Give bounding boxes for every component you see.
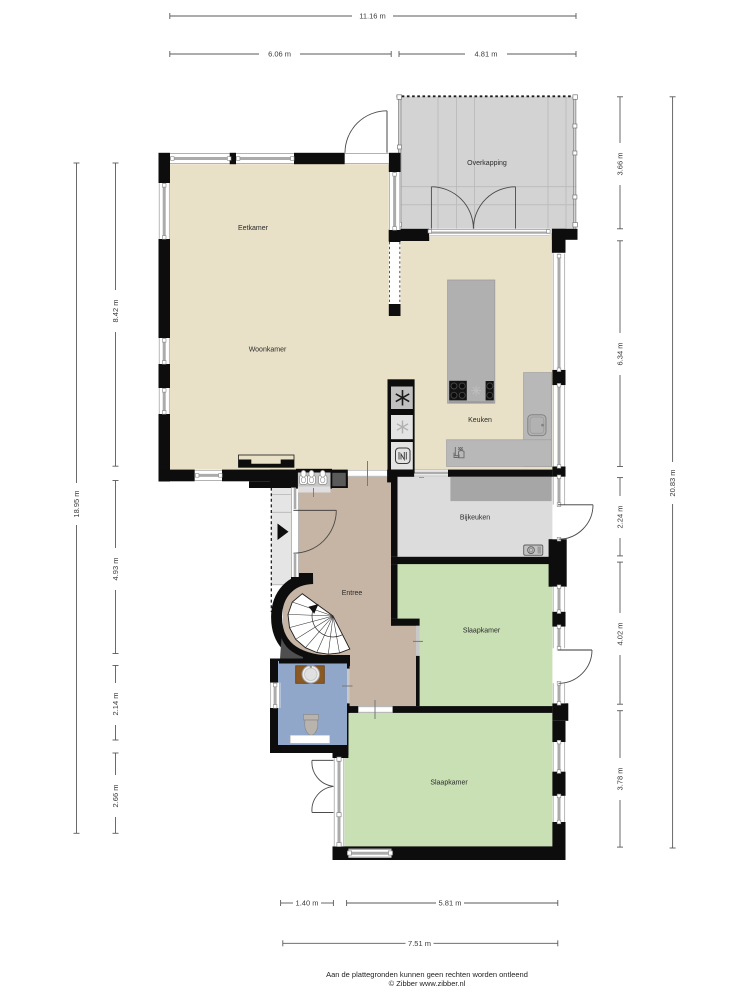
svg-text:Slaapkamer: Slaapkamer: [463, 627, 501, 634]
svg-text:5.81 m: 5.81 m: [439, 899, 462, 908]
svg-text:Eetkamer: Eetkamer: [238, 225, 269, 232]
svg-text:4.93 m: 4.93 m: [111, 558, 120, 581]
svg-text:Slaapkamer: Slaapkamer: [430, 779, 468, 786]
svg-text:Overkapping: Overkapping: [467, 160, 507, 167]
svg-text:8.42 m: 8.42 m: [111, 300, 120, 323]
svg-text:3.66 m: 3.66 m: [616, 153, 625, 176]
svg-text:Aan de plattegronden kunnen ge: Aan de plattegronden kunnen geen rechten…: [326, 970, 528, 979]
svg-text:Woonkamer: Woonkamer: [249, 346, 287, 353]
svg-text:4.02 m: 4.02 m: [616, 623, 625, 646]
svg-text:6.34 m: 6.34 m: [616, 343, 625, 366]
svg-text:18.95 m: 18.95 m: [72, 490, 81, 517]
svg-text:3.78 m: 3.78 m: [616, 768, 625, 791]
svg-text:4.81 m: 4.81 m: [475, 50, 498, 59]
svg-text:Keuken: Keuken: [468, 417, 492, 424]
svg-text:7.51 m: 7.51 m: [408, 939, 431, 948]
svg-text:20.83 m: 20.83 m: [668, 469, 677, 496]
svg-text:2.14 m: 2.14 m: [111, 693, 120, 716]
svg-text:1.40 m: 1.40 m: [296, 899, 319, 908]
svg-text:11.16 m: 11.16 m: [359, 12, 386, 21]
svg-text:6.06 m: 6.06 m: [268, 50, 291, 59]
svg-text:2.66 m: 2.66 m: [111, 785, 120, 808]
svg-text:Bijkeuken: Bijkeuken: [460, 515, 490, 522]
svg-text:2.24 m: 2.24 m: [616, 506, 625, 529]
svg-text:© Zibber www.zibber.nl: © Zibber www.zibber.nl: [389, 979, 466, 988]
svg-text:Entree: Entree: [342, 590, 363, 597]
